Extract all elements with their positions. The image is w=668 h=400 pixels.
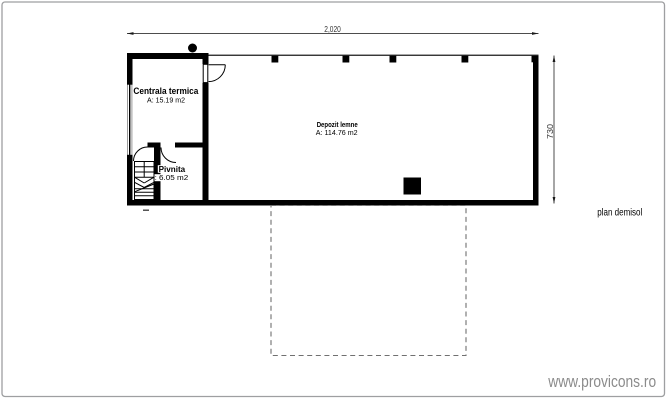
svg-text:www.provicons.ro: www.provicons.ro [547,372,656,391]
svg-text:Pivnita: Pivnita [159,165,186,174]
svg-text:plan demisol: plan demisol [597,207,642,218]
svg-text:A: 114.76 m2: A: 114.76 m2 [316,128,358,137]
svg-text:2,020: 2,020 [324,24,341,34]
svg-text:A: 15.19 m2: A: 15.19 m2 [147,95,185,104]
svg-text:A: 6.05 m2: A: 6.05 m2 [149,175,188,182]
svg-text:730: 730 [546,123,555,139]
